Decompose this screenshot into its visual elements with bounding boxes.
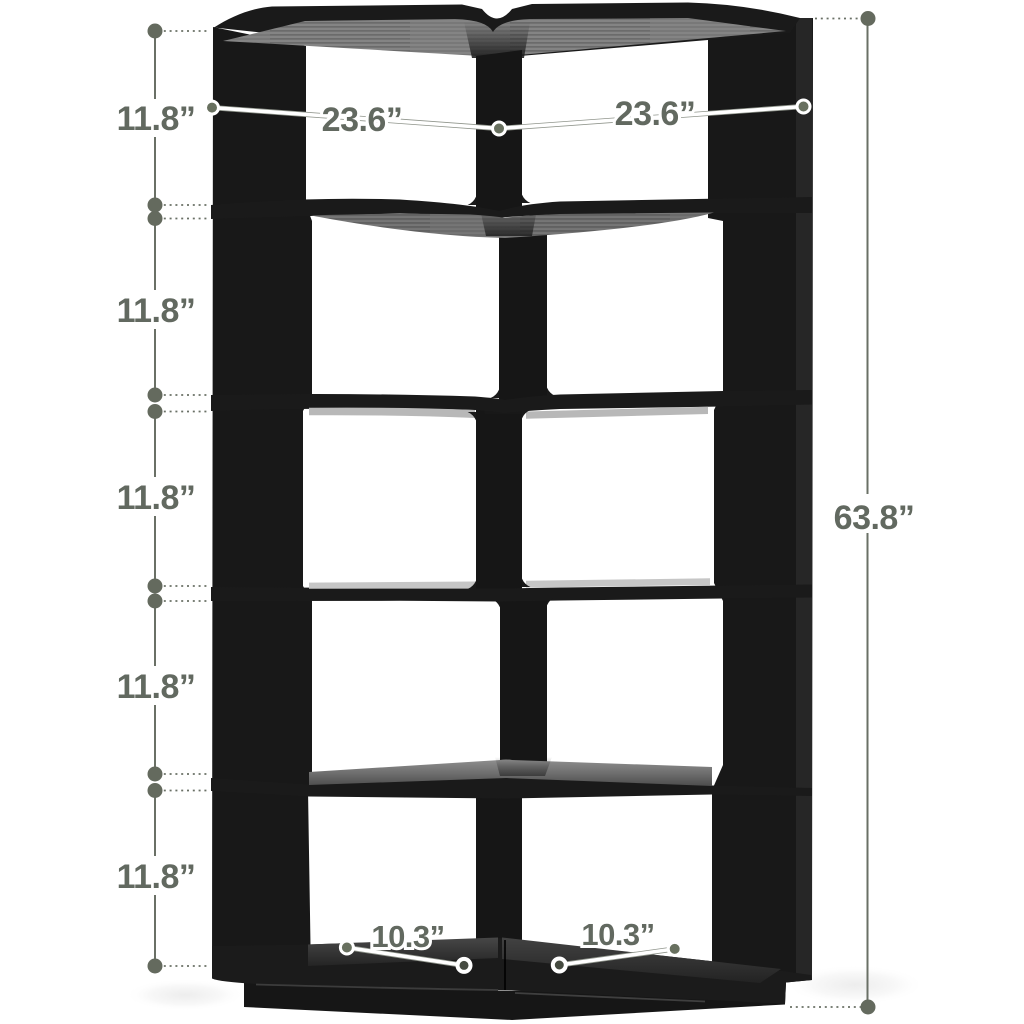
svg-text:11.8”: 11.8” bbox=[117, 100, 196, 138]
svg-text:10.3”: 10.3” bbox=[371, 919, 444, 954]
svg-text:11.8”: 11.8” bbox=[117, 858, 196, 896]
svg-text:11.8”: 11.8” bbox=[117, 479, 196, 517]
svg-text:23.6”: 23.6” bbox=[322, 101, 403, 139]
svg-text:63.8”: 63.8” bbox=[834, 499, 915, 537]
svg-text:11.8”: 11.8” bbox=[117, 292, 196, 330]
svg-text:10.3”: 10.3” bbox=[581, 917, 654, 952]
svg-text:23.6”: 23.6” bbox=[615, 95, 696, 133]
svg-text:11.8”: 11.8” bbox=[117, 668, 196, 706]
